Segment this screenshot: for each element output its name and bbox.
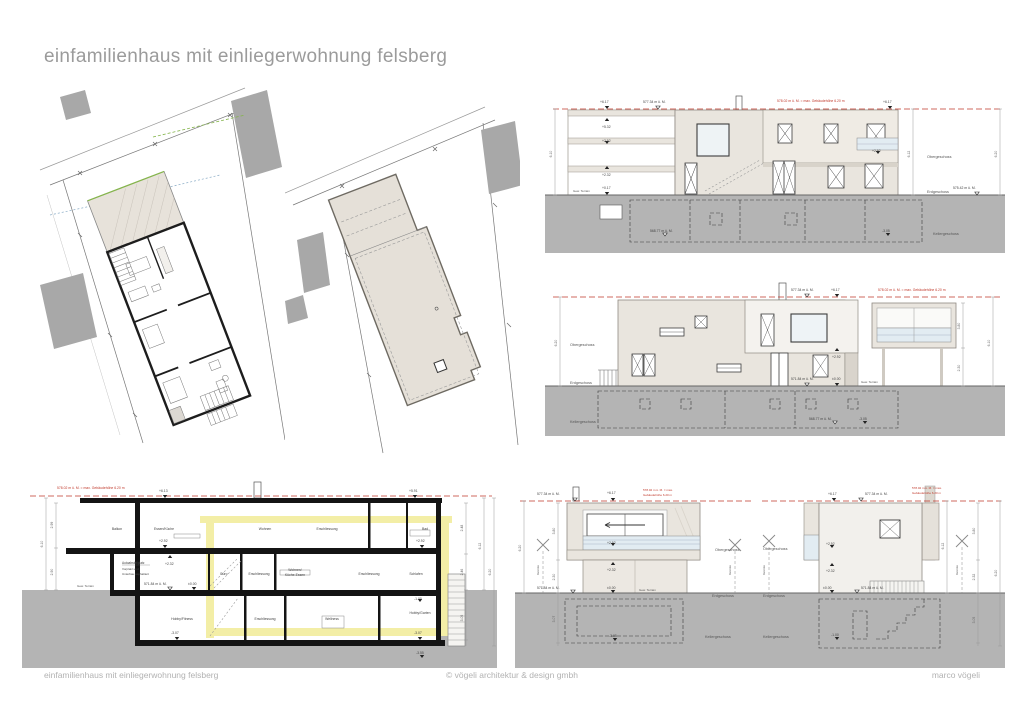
- svg-text:-1.00: -1.00: [831, 633, 839, 637]
- roof-plan: [285, 85, 520, 460]
- svg-text:577.34 m ü. M.: 577.34 m ü. M.: [537, 492, 560, 496]
- svg-text:+0.17: +0.17: [602, 186, 611, 190]
- ground: [515, 593, 757, 668]
- svg-text:3.80: 3.80: [552, 528, 556, 535]
- svg-text:Kellergeschoss: Kellergeschoss: [763, 635, 789, 639]
- svg-text:+2.92: +2.92: [416, 539, 425, 543]
- svg-text:+6.17: +6.17: [607, 491, 616, 495]
- svg-text:Grenze: Grenze: [728, 565, 732, 575]
- svg-text:Unterbau asphaltiert: Unterbau asphaltiert: [122, 572, 149, 576]
- svg-text:2.90: 2.90: [50, 569, 54, 576]
- svg-text:Grenze: Grenze: [955, 565, 959, 575]
- svg-text:Obergeschoss: Obergeschoss: [763, 547, 788, 551]
- page-title: einfamilienhaus mit einliegerwohnung fel…: [44, 46, 447, 68]
- svg-text:Wellness: Wellness: [325, 617, 339, 621]
- right-upper-volume: [872, 303, 956, 386]
- elevation-1: 578.02 m ü. M. = max. Gebäudehöhe 6.20 m…: [545, 88, 1005, 256]
- svg-text:2.32: 2.32: [972, 574, 976, 581]
- svg-text:±0.00: ±0.00: [607, 586, 616, 590]
- svg-text:Kellergeschoss: Kellergeschoss: [570, 420, 596, 424]
- footer-copyright: © vögeli architektur & design gmbh: [0, 670, 1024, 680]
- building-plan: [88, 171, 256, 438]
- elevation-3: 578.02 m ü. M. = max. Gebäudehöhe 6.20 m…: [515, 478, 757, 668]
- svg-text:Grenze: Grenze: [536, 565, 540, 575]
- svg-text:Autoabstellplatz: Autoabstellplatz: [122, 561, 145, 565]
- floor-plan-upper: [35, 85, 285, 450]
- left-railing: [598, 370, 618, 386]
- svg-text:571.84 m ü. M.: 571.84 m ü. M.: [791, 377, 814, 381]
- svg-text:Grenze: Grenze: [762, 565, 766, 575]
- svg-text:+5.32: +5.32: [602, 125, 611, 129]
- exterior-stair: [448, 574, 465, 646]
- svg-text:568.77 m ü. M.: 568.77 m ü. M.: [650, 229, 673, 233]
- svg-text:Küche-Essen: Küche-Essen: [285, 573, 305, 577]
- svg-text:+2.92: +2.92: [872, 149, 881, 153]
- building: [568, 96, 898, 195]
- svg-text:6.12: 6.12: [478, 543, 482, 550]
- svg-text:2.99: 2.99: [50, 522, 54, 529]
- svg-text:577.34 m ü. M.: 577.34 m ü. M.: [643, 100, 666, 104]
- svg-text:Obergeschoss: Obergeschoss: [570, 343, 595, 347]
- svg-text:Erdgeschoss: Erdgeschoss: [712, 594, 734, 598]
- svg-text:+5.91: +5.91: [409, 489, 418, 493]
- svg-text:+2.32: +2.32: [607, 568, 616, 572]
- svg-text:Gebäudehöhe 6.20 m: Gebäudehöhe 6.20 m: [643, 493, 673, 497]
- chimney: [736, 96, 742, 110]
- svg-text:+6.17: +6.17: [600, 100, 609, 104]
- svg-text:3.07: 3.07: [552, 616, 556, 623]
- ground: [545, 386, 1005, 436]
- svg-text:Erdgeschoss: Erdgeschoss: [763, 594, 785, 598]
- ground: [545, 195, 1005, 253]
- svg-text:577.34 m ü. M.: 577.34 m ü. M.: [791, 288, 814, 292]
- svg-text:+6.13: +6.13: [159, 489, 168, 493]
- svg-text:568.77 m ü. M.: 568.77 m ü. M.: [809, 417, 832, 421]
- svg-text:6.20: 6.20: [994, 570, 998, 577]
- svg-text:571.84 m ü. M.: 571.84 m ü. M.: [537, 586, 560, 590]
- svg-text:575.42 m ü. M.: 575.42 m ü. M.: [953, 186, 976, 190]
- svg-text:578.02 m ü. M. = max.: 578.02 m ü. M. = max.: [643, 488, 673, 492]
- building: [598, 300, 956, 386]
- svg-text:Balkon: Balkon: [112, 527, 122, 531]
- svg-text:Essen/Küche: Essen/Küche: [154, 527, 174, 531]
- svg-text:577.34 m ü. M.: 577.34 m ü. M.: [865, 492, 888, 496]
- svg-text:Gew. Terrain: Gew. Terrain: [861, 380, 878, 384]
- ground: [757, 593, 1005, 668]
- svg-text:±0.00: ±0.00: [832, 377, 841, 381]
- footer-author: marco vögeli: [932, 670, 980, 680]
- max-height-note: 578.02 m ü. M. = max. Gebäudehöhe 6.20 m: [777, 99, 845, 103]
- section-drawing: Balkon Essen/Küche Wohnen Erschliessung …: [22, 478, 502, 668]
- svg-text:Wohnen/: Wohnen/: [288, 568, 302, 572]
- svg-text:Vorplatz und: Vorplatz und: [122, 567, 139, 571]
- svg-text:-3.07: -3.07: [171, 631, 179, 635]
- svg-text:571.84 m ü. M.: 571.84 m ü. M.: [861, 586, 884, 590]
- svg-text:Erschliessung: Erschliessung: [358, 572, 379, 576]
- svg-text:+2.32: +2.32: [602, 173, 611, 177]
- svg-text:6.20: 6.20: [488, 569, 492, 576]
- svg-text:Erschliessung: Erschliessung: [254, 617, 275, 621]
- window: [697, 124, 729, 156]
- svg-text:3.80: 3.80: [957, 323, 961, 330]
- svg-text:2.46: 2.46: [460, 569, 464, 576]
- roof-outline: [329, 171, 484, 406]
- elevation-2: 578.02 m ü. M. = max. Gebäudehöhe 6.20 m…: [545, 278, 1005, 446]
- svg-text:3.05: 3.05: [972, 617, 976, 624]
- svg-text:3.05: 3.05: [460, 615, 464, 622]
- svg-text:-3.05: -3.05: [882, 229, 890, 233]
- svg-text:+2.92: +2.92: [832, 355, 841, 359]
- svg-text:6.20: 6.20: [994, 151, 998, 158]
- svg-text:+2.32: +2.32: [826, 569, 835, 573]
- svg-text:Bad: Bad: [422, 527, 428, 531]
- svg-text:-3.05: -3.05: [859, 417, 867, 421]
- svg-text:-3.07: -3.07: [414, 631, 422, 635]
- building: [567, 503, 700, 593]
- svg-text:578.02 m ü. M. = max. Gebäudeh: 578.02 m ü. M. = max. Gebäudehöhe 6.20 m: [57, 486, 125, 490]
- svg-text:+2.32: +2.32: [165, 562, 174, 566]
- building: [804, 486, 939, 593]
- svg-text:Gew. Terrain: Gew. Terrain: [77, 584, 94, 588]
- svg-text:6.10: 6.10: [549, 151, 553, 158]
- svg-text:6.10: 6.10: [40, 541, 44, 548]
- elevation-4: 578.02 m ü. M. = max. Gebäudehöhe 6.20 m…: [757, 478, 1005, 668]
- svg-text:-3.55: -3.55: [416, 651, 424, 655]
- svg-text:Büro: Büro: [220, 572, 227, 576]
- svg-text:Erschliessung: Erschliessung: [316, 527, 337, 531]
- svg-text:2.48: 2.48: [460, 525, 464, 532]
- svg-text:-1.00: -1.00: [414, 597, 422, 601]
- svg-text:Schlafen: Schlafen: [409, 572, 422, 576]
- svg-text:6.12: 6.12: [907, 151, 911, 158]
- svg-text:6.10: 6.10: [987, 340, 991, 347]
- svg-text:6.20: 6.20: [554, 340, 558, 347]
- svg-text:+2.92: +2.92: [826, 542, 835, 546]
- svg-text:+2.92: +2.92: [159, 539, 168, 543]
- svg-text:Gew. Terrain: Gew. Terrain: [573, 189, 590, 193]
- exterior-walls: [107, 223, 250, 425]
- svg-text:571.84 m ü. M.: 571.84 m ü. M.: [144, 582, 167, 586]
- svg-text:+6.17: +6.17: [883, 100, 892, 104]
- svg-text:2.30: 2.30: [552, 574, 556, 581]
- carport-note: Autoabstellplatz Vorplatz und Unterbau a…: [122, 561, 150, 576]
- svg-text:+6.17: +6.17: [831, 288, 840, 292]
- svg-text:±0.00: ±0.00: [823, 586, 832, 590]
- svg-text:Kellergeschoss: Kellergeschoss: [705, 635, 731, 639]
- svg-text:Erdgeschoss: Erdgeschoss: [570, 381, 592, 385]
- svg-text:±0.00: ±0.00: [188, 582, 197, 586]
- svg-text:Hobby/Garten: Hobby/Garten: [409, 611, 430, 615]
- drawing-sheet: einfamilienhaus mit einliegerwohnung fel…: [0, 0, 1024, 724]
- floor-label-og: Obergeschoss: [927, 155, 952, 159]
- svg-text:-3.05: -3.05: [609, 634, 617, 638]
- svg-text:+6.17: +6.17: [828, 492, 837, 496]
- svg-text:Wohnen: Wohnen: [259, 527, 272, 531]
- glass-balustrade: [583, 536, 700, 550]
- svg-text:6.20: 6.20: [518, 545, 522, 552]
- chimney: [779, 283, 786, 300]
- svg-text:Hobby/Fitness: Hobby/Fitness: [171, 617, 193, 621]
- floor-label-eg: Erdgeschoss: [927, 190, 949, 194]
- svg-text:+2.92: +2.92: [607, 541, 616, 545]
- svg-text:578.02 m ü. M. = max. Gebäudeh: 578.02 m ü. M. = max. Gebäudehöhe 6.20 m: [878, 288, 946, 292]
- svg-text:Erschliessung: Erschliessung: [248, 572, 269, 576]
- svg-text:Gew. Terrain: Gew. Terrain: [639, 588, 656, 592]
- floor-label-kg: Kellergeschoss: [933, 232, 959, 236]
- svg-text:3.80: 3.80: [972, 528, 976, 535]
- svg-text:Obergeschoss: Obergeschoss: [715, 548, 740, 552]
- svg-text:6.12: 6.12: [941, 543, 945, 550]
- svg-text:+2.92: +2.92: [602, 139, 611, 143]
- svg-text:578.02 m ü. M. = max.: 578.02 m ü. M. = max.: [912, 486, 942, 490]
- svg-text:Gebäudehöhe 6.20 m: Gebäudehöhe 6.20 m: [912, 491, 942, 495]
- svg-text:2.30: 2.30: [957, 365, 961, 372]
